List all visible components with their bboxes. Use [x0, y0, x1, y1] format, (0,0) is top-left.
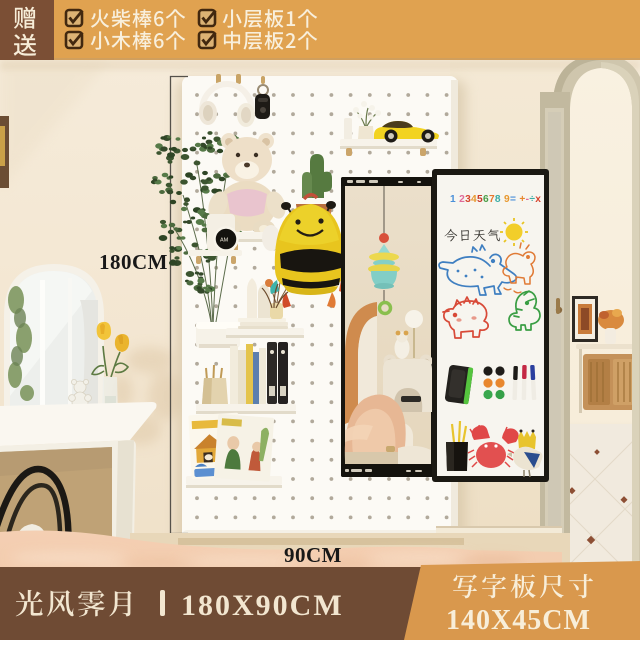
svg-text:180CM: 180CM [99, 250, 168, 274]
svg-text:1 2345678 9= +-÷x: 1 2345678 9= +-÷x [450, 194, 541, 205]
svg-text:180X90CM: 180X90CM [181, 589, 344, 622]
svg-text:140X45CM: 140X45CM [446, 605, 591, 636]
svg-text:90CM: 90CM [284, 543, 342, 567]
svg-text:AM: AM [220, 238, 229, 244]
